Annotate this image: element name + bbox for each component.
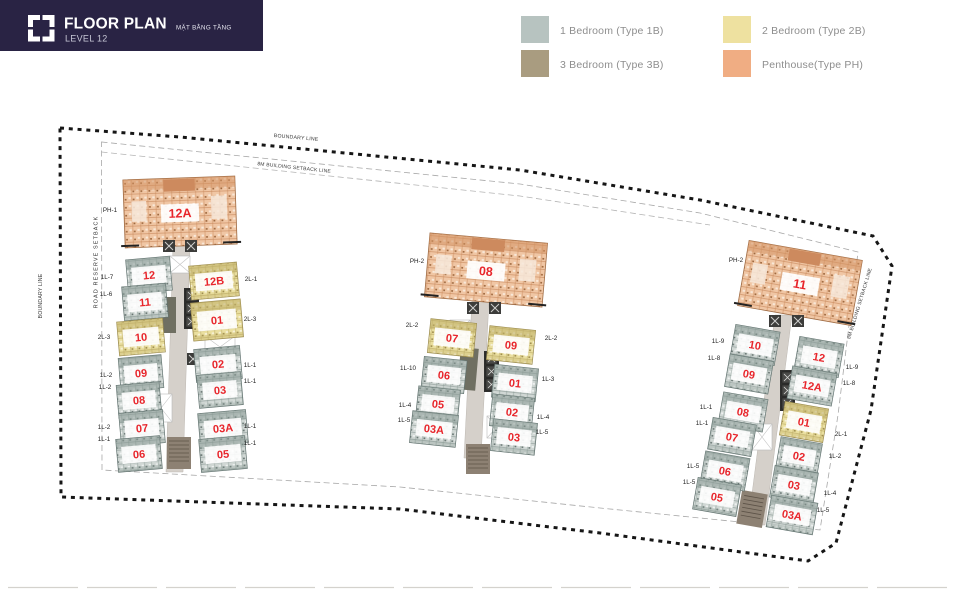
svg-text:01: 01 bbox=[797, 416, 811, 430]
svg-text:11: 11 bbox=[792, 276, 807, 292]
svg-text:1L-8: 1L-8 bbox=[708, 355, 721, 362]
svg-text:1L-5: 1L-5 bbox=[817, 507, 830, 514]
svg-text:1L-6: 1L-6 bbox=[100, 291, 113, 298]
svg-text:1L-2: 1L-2 bbox=[100, 372, 113, 379]
svg-text:3 Bedroom (Type 3B): 3 Bedroom (Type 3B) bbox=[560, 59, 664, 71]
svg-text:02: 02 bbox=[211, 358, 224, 371]
svg-text:2L-1: 2L-1 bbox=[835, 431, 848, 438]
svg-text:BOUNDARY LINE: BOUNDARY LINE bbox=[38, 273, 44, 318]
svg-text:1L-5: 1L-5 bbox=[536, 429, 549, 436]
svg-text:12: 12 bbox=[812, 351, 826, 365]
svg-text:06: 06 bbox=[437, 369, 450, 382]
svg-text:03: 03 bbox=[507, 431, 520, 444]
svg-text:07: 07 bbox=[445, 332, 458, 345]
svg-text:FLOOR PLAN: FLOOR PLAN bbox=[64, 16, 167, 33]
svg-text:1L-7: 1L-7 bbox=[101, 274, 114, 281]
svg-text:ROAD RESERVE SETBACK: ROAD RESERVE SETBACK bbox=[94, 216, 100, 309]
svg-text:01: 01 bbox=[508, 377, 521, 390]
svg-text:2 Bedroom (Type 2B): 2 Bedroom (Type 2B) bbox=[762, 25, 866, 37]
svg-text:1L-8: 1L-8 bbox=[843, 380, 856, 387]
svg-text:2L-2: 2L-2 bbox=[545, 335, 558, 342]
svg-text:05: 05 bbox=[431, 398, 444, 411]
svg-text:PH-2: PH-2 bbox=[729, 257, 744, 264]
svg-text:1L-9: 1L-9 bbox=[846, 364, 859, 371]
svg-text:03A: 03A bbox=[423, 423, 444, 437]
svg-text:2L-3: 2L-3 bbox=[98, 334, 111, 341]
svg-text:1L-5: 1L-5 bbox=[398, 417, 411, 424]
svg-text:PH-1: PH-1 bbox=[103, 207, 118, 214]
svg-text:08: 08 bbox=[736, 406, 750, 420]
svg-text:2L-3: 2L-3 bbox=[244, 316, 257, 323]
svg-text:Penthouse(Type PH): Penthouse(Type PH) bbox=[762, 59, 863, 71]
svg-text:02: 02 bbox=[505, 406, 518, 419]
svg-text:1L-1: 1L-1 bbox=[244, 440, 257, 447]
svg-text:02: 02 bbox=[792, 450, 806, 464]
svg-text:LEVEL 12: LEVEL 12 bbox=[65, 34, 108, 44]
svg-text:08: 08 bbox=[478, 264, 493, 279]
svg-text:08: 08 bbox=[132, 394, 145, 407]
svg-text:1L-1: 1L-1 bbox=[98, 436, 111, 443]
svg-text:2L-2: 2L-2 bbox=[406, 322, 419, 329]
svg-text:PH-2: PH-2 bbox=[410, 258, 425, 265]
svg-text:12: 12 bbox=[142, 269, 155, 282]
svg-text:12A: 12A bbox=[168, 206, 191, 221]
svg-text:1L-5: 1L-5 bbox=[683, 479, 696, 486]
svg-text:06: 06 bbox=[132, 448, 145, 461]
svg-text:1L-3: 1L-3 bbox=[542, 376, 555, 383]
svg-text:1 Bedroom (Type 1B): 1 Bedroom (Type 1B) bbox=[560, 25, 664, 37]
svg-text:1L-2: 1L-2 bbox=[98, 424, 111, 431]
svg-text:06: 06 bbox=[718, 465, 732, 479]
svg-text:1L-4: 1L-4 bbox=[824, 490, 837, 497]
svg-text:1L-1: 1L-1 bbox=[244, 378, 257, 385]
svg-text:03A: 03A bbox=[213, 422, 234, 436]
svg-text:11: 11 bbox=[139, 297, 152, 310]
svg-text:10: 10 bbox=[748, 339, 762, 353]
svg-text:09: 09 bbox=[742, 368, 756, 382]
svg-text:1L-1: 1L-1 bbox=[244, 423, 257, 430]
svg-text:1L-1: 1L-1 bbox=[700, 404, 713, 411]
svg-text:03: 03 bbox=[787, 479, 801, 493]
svg-text:07: 07 bbox=[135, 422, 148, 435]
svg-text:1L-1: 1L-1 bbox=[696, 420, 709, 427]
svg-text:10: 10 bbox=[134, 331, 147, 344]
svg-text:1L-5: 1L-5 bbox=[687, 463, 700, 470]
svg-text:1L-2: 1L-2 bbox=[99, 384, 112, 391]
svg-text:01: 01 bbox=[210, 314, 223, 327]
svg-text:2L-1: 2L-1 bbox=[245, 276, 258, 283]
svg-text:05: 05 bbox=[710, 491, 724, 505]
svg-text:09: 09 bbox=[134, 367, 147, 380]
svg-text:1L-10: 1L-10 bbox=[400, 365, 417, 372]
svg-text:1L-4: 1L-4 bbox=[399, 402, 412, 409]
svg-text:1L-4: 1L-4 bbox=[537, 414, 550, 421]
svg-text:1L-1: 1L-1 bbox=[244, 362, 257, 369]
svg-text:MẶT BẰNG TẦNG: MẶT BẰNG TẦNG bbox=[176, 24, 232, 32]
svg-text:1L-2: 1L-2 bbox=[829, 453, 842, 460]
svg-text:12B: 12B bbox=[204, 275, 225, 289]
svg-text:05: 05 bbox=[216, 448, 229, 461]
svg-text:09: 09 bbox=[504, 339, 517, 352]
svg-text:03: 03 bbox=[213, 384, 226, 397]
svg-text:1L-9: 1L-9 bbox=[712, 338, 725, 345]
svg-text:07: 07 bbox=[725, 431, 739, 445]
